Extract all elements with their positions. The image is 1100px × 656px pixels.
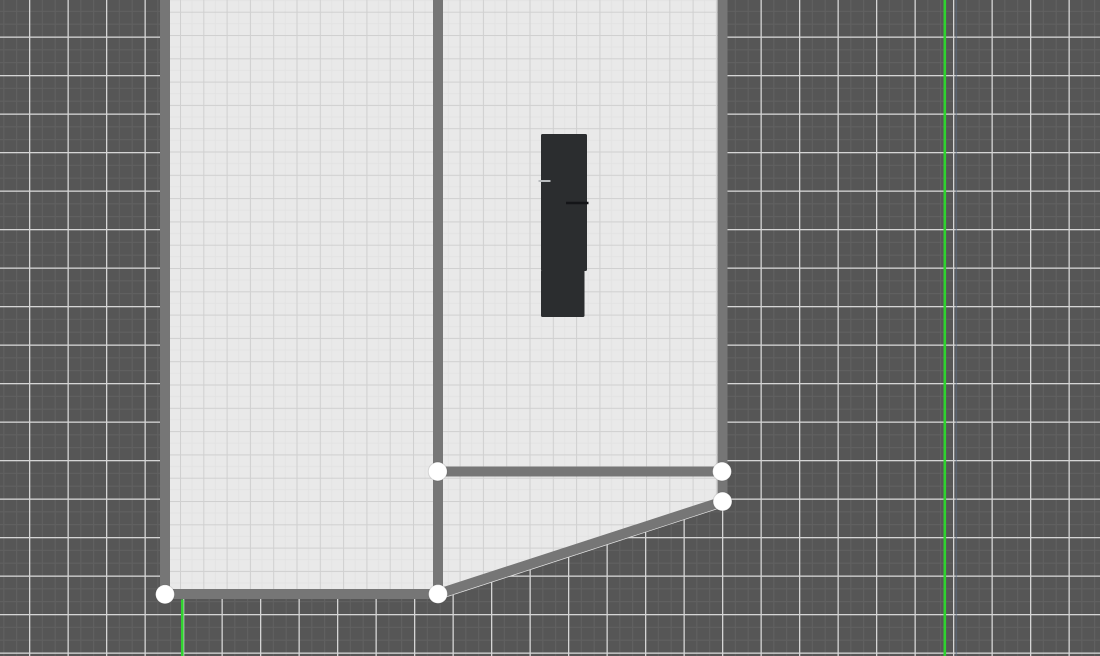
furniture-body [541,270,585,317]
vertex-handle-bottom-middle[interactable] [429,585,448,604]
vertex-handle-bottom-left[interactable] [156,585,175,604]
vertex-handle-divider-right[interactable] [713,462,732,481]
furniture-item[interactable] [539,134,589,317]
editor-viewport [0,0,1100,656]
floor-plan-svg [0,0,1100,656]
vertex-handle-divider-left[interactable] [428,462,447,481]
room-floor[interactable] [160,0,727,599]
vertex-handle-right-wall-end[interactable] [713,492,732,511]
